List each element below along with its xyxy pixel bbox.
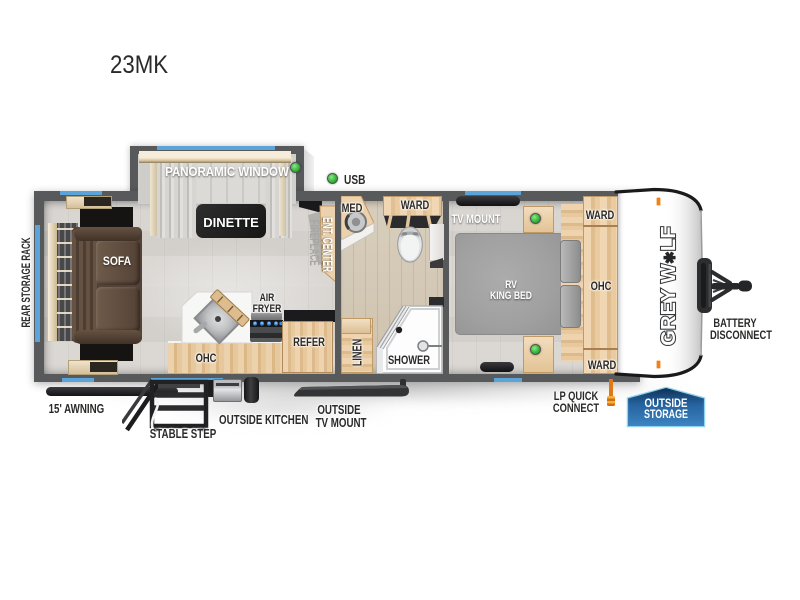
svg-text:GREY W✱LF: GREY W✱LF <box>658 226 680 346</box>
svg-text:STORAGE: STORAGE <box>644 409 688 421</box>
